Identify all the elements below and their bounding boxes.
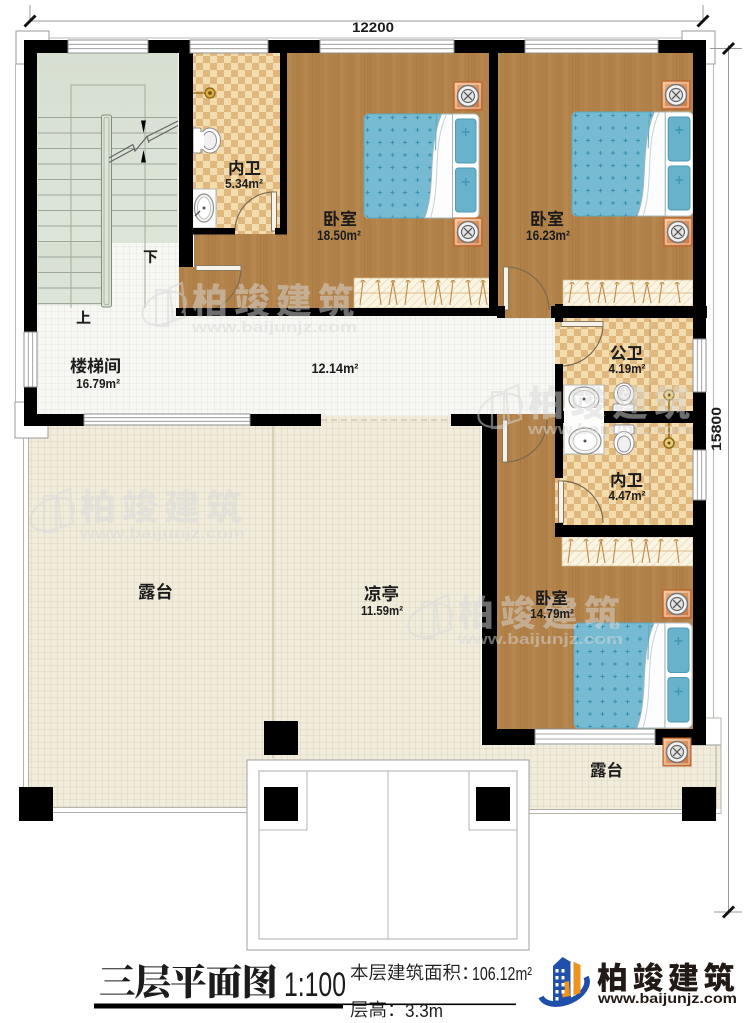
svg-text:1:100: 1:100 [284,966,346,1004]
svg-text:18.50m²: 18.50m² [317,227,361,243]
svg-text:15800: 15800 [708,407,724,451]
svg-text:16.23m²: 16.23m² [526,227,570,243]
svg-text:12.14m²: 12.14m² [312,360,359,376]
svg-text:12200: 12200 [352,19,394,35]
svg-text:www.baijunjz.com: www.baijunjz.com [79,525,245,542]
svg-text:4.47m²: 4.47m² [609,488,647,503]
svg-text:14.79m²: 14.79m² [530,606,575,621]
svg-text:11.59m²: 11.59m² [361,603,404,618]
svg-text:www.baijunjz.com: www.baijunjz.com [457,631,623,648]
svg-text:3.3m: 3.3m [405,1000,443,1021]
svg-text:5.34m²: 5.34m² [225,176,264,191]
svg-text:106.12m²: 106.12m² [472,963,532,984]
svg-text:4.19m²: 4.19m² [609,361,647,376]
svg-text:www.baijunjz.com: www.baijunjz.com [597,991,737,1006]
svg-text:16.79m²: 16.79m² [76,376,121,391]
svg-text:www.baijunjz.com: www.baijunjz.com [191,319,357,336]
svg-text:www.baijunjz.com: www.baijunjz.com [527,421,693,438]
